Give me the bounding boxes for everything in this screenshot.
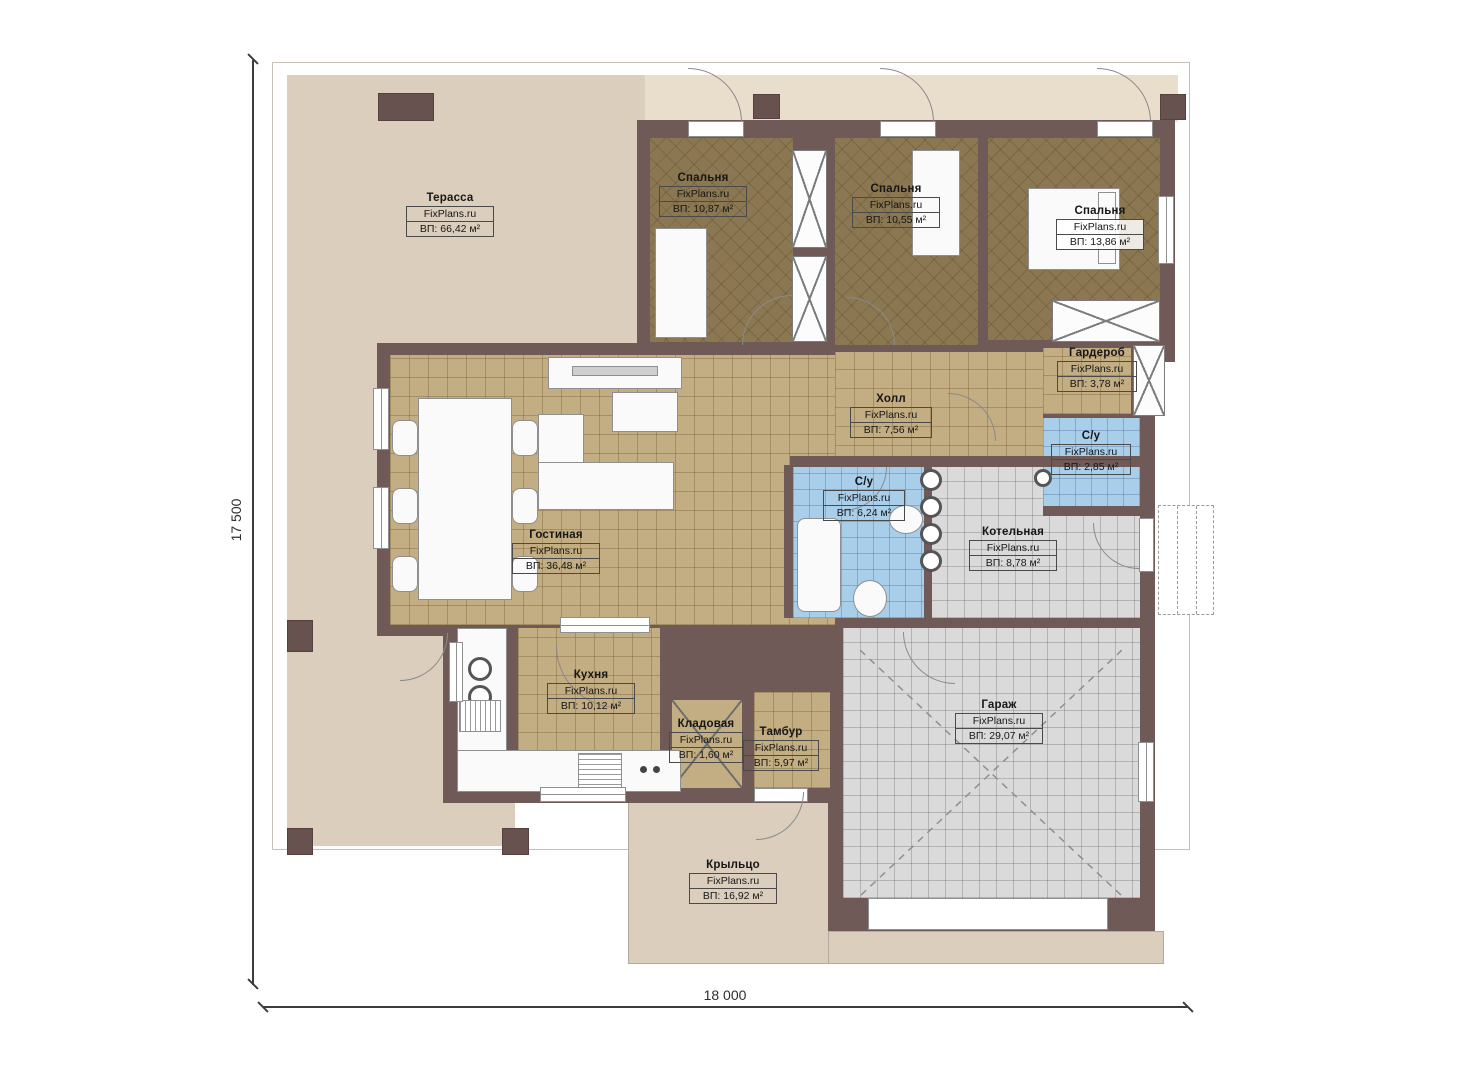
sofa: [538, 462, 674, 510]
stove-burner-icon: [468, 657, 492, 681]
kitchen-counter-bottom: [457, 750, 681, 792]
bed-bedroom-1: [655, 228, 707, 338]
porch-strip-under-garage: [828, 931, 1164, 964]
room-name: Гостиная: [512, 529, 600, 541]
room-label-hall: Холл FixPlans.ru ВП: 7,56 м²: [850, 393, 932, 438]
room-name: Кладовая: [669, 718, 743, 730]
fridge-symbol: [459, 700, 501, 732]
dimension-line-width: [263, 1006, 1188, 1008]
terrace-pillar: [378, 93, 434, 121]
coffee-table: [612, 392, 678, 432]
watermark: FixPlans.ru: [824, 491, 904, 506]
room-area: ВП: 5,97 м²: [744, 756, 818, 770]
room-area: ВП: 10,87 м²: [660, 202, 746, 216]
watermark: FixPlans.ru: [853, 198, 939, 213]
boiler-manifold-icon: [920, 469, 942, 491]
watermark: FixPlans.ru: [1052, 445, 1130, 460]
room-area: ВП: 10,12 м²: [548, 699, 634, 713]
dining-table: [418, 398, 512, 600]
room-name: Спальня: [659, 172, 747, 184]
room-label-bath-main: С/у FixPlans.ru ВП: 6,24 м²: [823, 476, 905, 521]
exterior-steps: [1158, 505, 1214, 615]
watermark: FixPlans.ru: [1058, 362, 1136, 377]
room-label-vestibule: Тамбур FixPlans.ru ВП: 5,97 м²: [743, 726, 819, 771]
room-name: С/у: [1051, 430, 1131, 442]
dimension-line-height: [252, 60, 254, 985]
room-name: Терасса: [406, 192, 494, 204]
room-area: ВП: 10,55 м²: [853, 213, 939, 227]
boiler-manifold-icon: [920, 496, 942, 518]
terrace-pillar: [287, 620, 313, 652]
room-label-bath-small: С/у FixPlans.ru ВП: 2,85 м²: [1051, 430, 1131, 475]
room-label-living: Гостиная FixPlans.ru ВП: 36,48 м²: [512, 529, 600, 574]
door-opening-bedroom-2: [880, 121, 936, 137]
window-living-bottom: [560, 617, 650, 633]
floor-plan-canvas: Терасса FixPlans.ru ВП: 66,42 м² Спальня…: [0, 0, 1474, 1080]
tv-icon: [572, 366, 658, 376]
room-name: Гардероб: [1057, 347, 1137, 359]
room-name: Крыльцо: [689, 859, 777, 871]
room-name: Спальня: [852, 183, 940, 195]
garage-parking-mark: [860, 650, 1122, 896]
shaft-right-of-wardrobe: [1133, 345, 1165, 416]
boiler-unit-icon: [1034, 469, 1052, 487]
dining-chair: [392, 420, 418, 456]
watermark: FixPlans.ru: [970, 541, 1056, 556]
room-name: Спальня: [1056, 205, 1144, 217]
room-name: Тамбур: [743, 726, 819, 738]
window-garage-right: [1138, 742, 1154, 802]
terrace-pillar: [502, 828, 529, 855]
room-area: ВП: 6,24 м²: [824, 506, 904, 520]
dimension-label-height: 17 500: [228, 488, 244, 552]
watermark: FixPlans.ru: [1057, 220, 1143, 235]
room-area: ВП: 3,78 м²: [1058, 377, 1136, 391]
boiler-manifold-icon: [920, 523, 942, 545]
room-area: ВП: 8,78 м²: [970, 556, 1056, 570]
garage-gate-opening: [868, 898, 1108, 930]
room-label-wardrobe: Гардероб FixPlans.ru ВП: 3,78 м²: [1057, 347, 1137, 392]
dimension-label-width: 18 000: [693, 987, 757, 1003]
dining-chair: [512, 488, 538, 524]
room-label-boiler: Котельная FixPlans.ru ВП: 8,78 м²: [969, 526, 1057, 571]
wardrobe-bedroom-3: [1052, 300, 1160, 342]
sink-tap-dot: [640, 766, 647, 773]
room-area: ВП: 66,42 м²: [407, 222, 493, 236]
room-area: ВП: 16,92 м²: [690, 889, 776, 903]
room-name: Кухня: [547, 669, 635, 681]
watermark: FixPlans.ru: [670, 733, 742, 748]
sofa-chaise: [538, 414, 584, 466]
watermark: FixPlans.ru: [660, 187, 746, 202]
room-name: Гараж: [955, 699, 1043, 711]
room-name: Холл: [850, 393, 932, 405]
watermark: FixPlans.ru: [407, 207, 493, 222]
window-living-left-2: [373, 487, 389, 549]
dining-chair: [392, 556, 418, 592]
boiler-manifold-icon: [920, 550, 942, 572]
watermark: FixPlans.ru: [744, 741, 818, 756]
room-name: С/у: [823, 476, 905, 488]
terrace-pillar: [287, 828, 313, 855]
wall-bath-left: [784, 465, 793, 618]
closet-shaft-upper: [792, 150, 827, 248]
boiler-door-opening: [1139, 518, 1154, 572]
room-area: ВП: 36,48 м²: [513, 559, 599, 573]
room-label-pantry: Кладовая FixPlans.ru ВП: 1,60 м²: [669, 718, 743, 763]
window-kitchen-bottom: [540, 787, 626, 802]
terrace-pillar: [1160, 94, 1186, 120]
room-label-porch: Крыльцо FixPlans.ru ВП: 16,92 м²: [689, 859, 777, 904]
window-living-left-1: [373, 388, 389, 450]
dining-chair: [512, 420, 538, 456]
terrace-pillar: [753, 94, 780, 119]
room-area: ВП: 13,86 м²: [1057, 235, 1143, 249]
room-label-terrace: Терасса FixPlans.ru ВП: 66,42 м²: [406, 192, 494, 237]
room-area: ВП: 7,56 м²: [851, 423, 931, 437]
room-label-bedroom-3: Спальня FixPlans.ru ВП: 13,86 м²: [1056, 205, 1144, 250]
room-area: ВП: 1,60 м²: [670, 748, 742, 762]
room-label-bedroom-2: Спальня FixPlans.ru ВП: 10,55 м²: [852, 183, 940, 228]
watermark: FixPlans.ru: [548, 684, 634, 699]
watermark: FixPlans.ru: [851, 408, 931, 423]
window-kitchen-left: [449, 642, 463, 702]
dining-chair: [392, 488, 418, 524]
room-label-garage: Гараж FixPlans.ru ВП: 29,07 м²: [955, 699, 1043, 744]
toilet: [853, 580, 887, 617]
door-opening-bedroom-1: [688, 121, 744, 137]
watermark: FixPlans.ru: [513, 544, 599, 559]
room-name: Котельная: [969, 526, 1057, 538]
door-opening-bedroom-3: [1097, 121, 1153, 137]
window-bedroom-3-right: [1158, 196, 1174, 264]
watermark: FixPlans.ru: [690, 874, 776, 889]
watermark: FixPlans.ru: [956, 714, 1042, 729]
room-label-bedroom-1: Спальня FixPlans.ru ВП: 10,87 м²: [659, 172, 747, 217]
bathtub: [797, 518, 841, 612]
room-area: ВП: 2,85 м²: [1052, 460, 1130, 474]
room-area: ВП: 29,07 м²: [956, 729, 1042, 743]
closet-shaft-lower: [792, 256, 827, 342]
room-label-kitchen: Кухня FixPlans.ru ВП: 10,12 м²: [547, 669, 635, 714]
steps-lines: [1177, 506, 1197, 614]
dishwasher-symbol: [578, 753, 622, 791]
wall-bath-small-bottom: [1043, 506, 1140, 516]
sink-tap-dot: [653, 766, 660, 773]
